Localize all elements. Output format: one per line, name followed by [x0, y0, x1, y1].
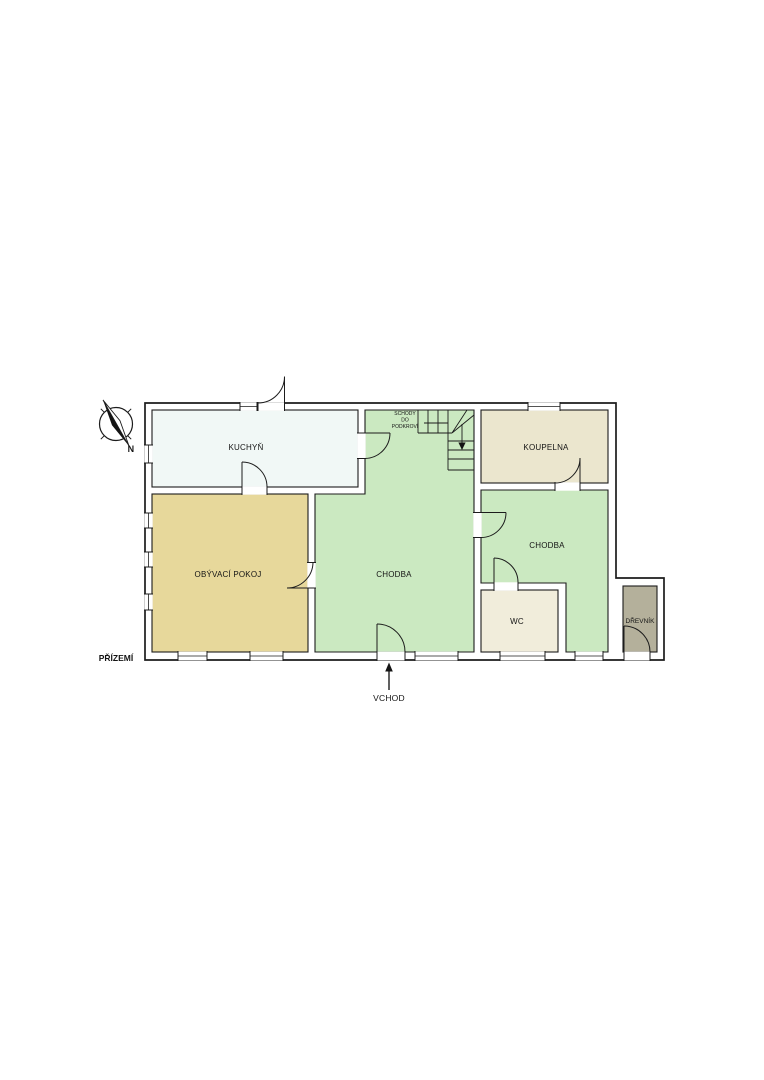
label-obyvaci-pokoj: OBÝVACÍ POKOJ [195, 570, 262, 579]
window-top-kitchen [240, 402, 258, 411]
window-left-living-2 [144, 552, 153, 567]
svg-text:DO: DO [401, 418, 409, 424]
entrance-arrow [385, 663, 393, 691]
window-left-living-1 [144, 513, 153, 528]
window-left-living-3 [144, 594, 153, 610]
window-bottom-living-2 [250, 651, 284, 661]
door-exterior-top [258, 377, 286, 412]
window-bottom-chodba-2 [575, 651, 604, 661]
label-wc: WC [510, 617, 524, 626]
svg-text:PODKROVÍ: PODKROVÍ [392, 423, 419, 430]
window-bottom-living-1 [178, 651, 208, 661]
compass: N [100, 400, 135, 454]
label-drevnik: DŘEVNÍK [626, 616, 656, 625]
label-chodba-main: CHODBA [376, 570, 412, 579]
window-bottom-chodba [415, 651, 459, 661]
label-vchod: VCHOD [373, 693, 405, 703]
compass-north-label: N [128, 444, 135, 454]
floor-plan-page: N KUCHYŇ OBÝVACÍ POKOJ CHODBA KOUPELNA C… [0, 0, 764, 1080]
label-kuchyn: KUCHYŇ [229, 443, 264, 452]
window-bottom-wc [500, 651, 546, 661]
window-left-kitchen [144, 445, 153, 463]
window-top-koupelna [528, 402, 561, 411]
compass-needle-light [103, 400, 129, 446]
label-chodba-2: CHODBA [529, 541, 565, 550]
floor-plan-svg: N KUCHYŇ OBÝVACÍ POKOJ CHODBA KOUPELNA C… [0, 0, 764, 1080]
label-prizemi: PŘÍZEMÍ [99, 652, 134, 663]
svg-text:SCHODY: SCHODY [394, 411, 416, 417]
label-koupelna: KOUPELNA [523, 443, 569, 452]
